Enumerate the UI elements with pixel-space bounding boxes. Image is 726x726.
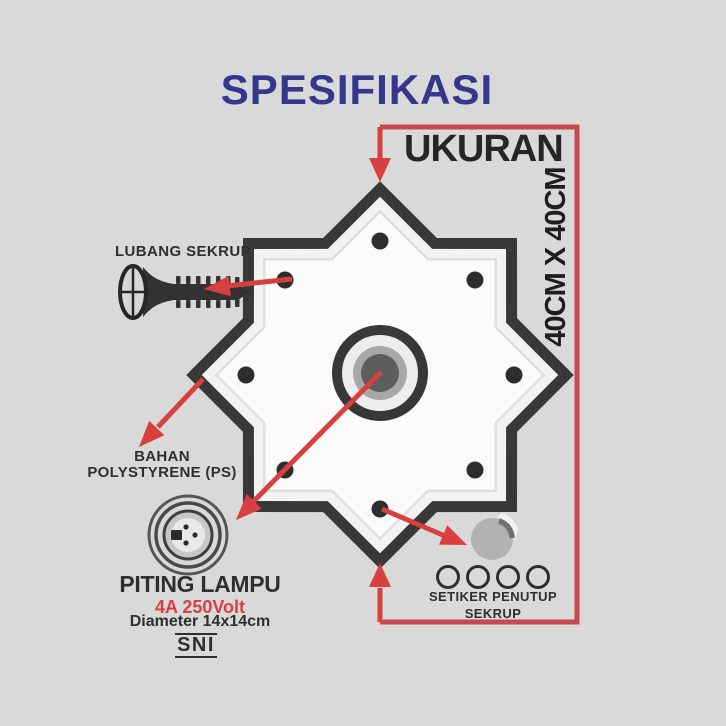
screw-cap-circles — [438, 567, 549, 588]
material-label-line1: BAHAN — [134, 449, 190, 464]
lamp-socket-icon — [149, 496, 227, 574]
sni-badge-wrap: SNI — [175, 633, 217, 658]
dimension-size-rotated: 40CM X 40CM — [541, 167, 571, 347]
material-label-line2: POLYSTYRENE (PS) — [87, 465, 236, 480]
sticker-label-line1: SETIKER PENUTUP — [429, 590, 557, 603]
screw-icon — [120, 266, 250, 318]
arrow-to-material — [139, 379, 203, 447]
socket-size: Diameter 14x14cm — [130, 614, 271, 630]
screw-hole-label: LUBANG SEKRUP — [115, 244, 251, 259]
sticker-peel-icon — [471, 513, 518, 560]
sticker-label-line2: SEKRUP — [465, 607, 522, 620]
bracket-arrow-down — [369, 158, 391, 182]
page-title: SPESIFIKASI — [221, 69, 493, 111]
product-spec-image: SPESIFIKASI UKURAN 40CM X 40CM LUBANG SE… — [0, 0, 726, 726]
screw-body — [143, 267, 250, 317]
sni-certification-badge: SNI — [175, 633, 217, 658]
dimension-label: UKURAN — [404, 130, 563, 168]
bracket-arrow-up — [369, 563, 391, 587]
socket-name: PITING LAMPU — [119, 573, 280, 596]
